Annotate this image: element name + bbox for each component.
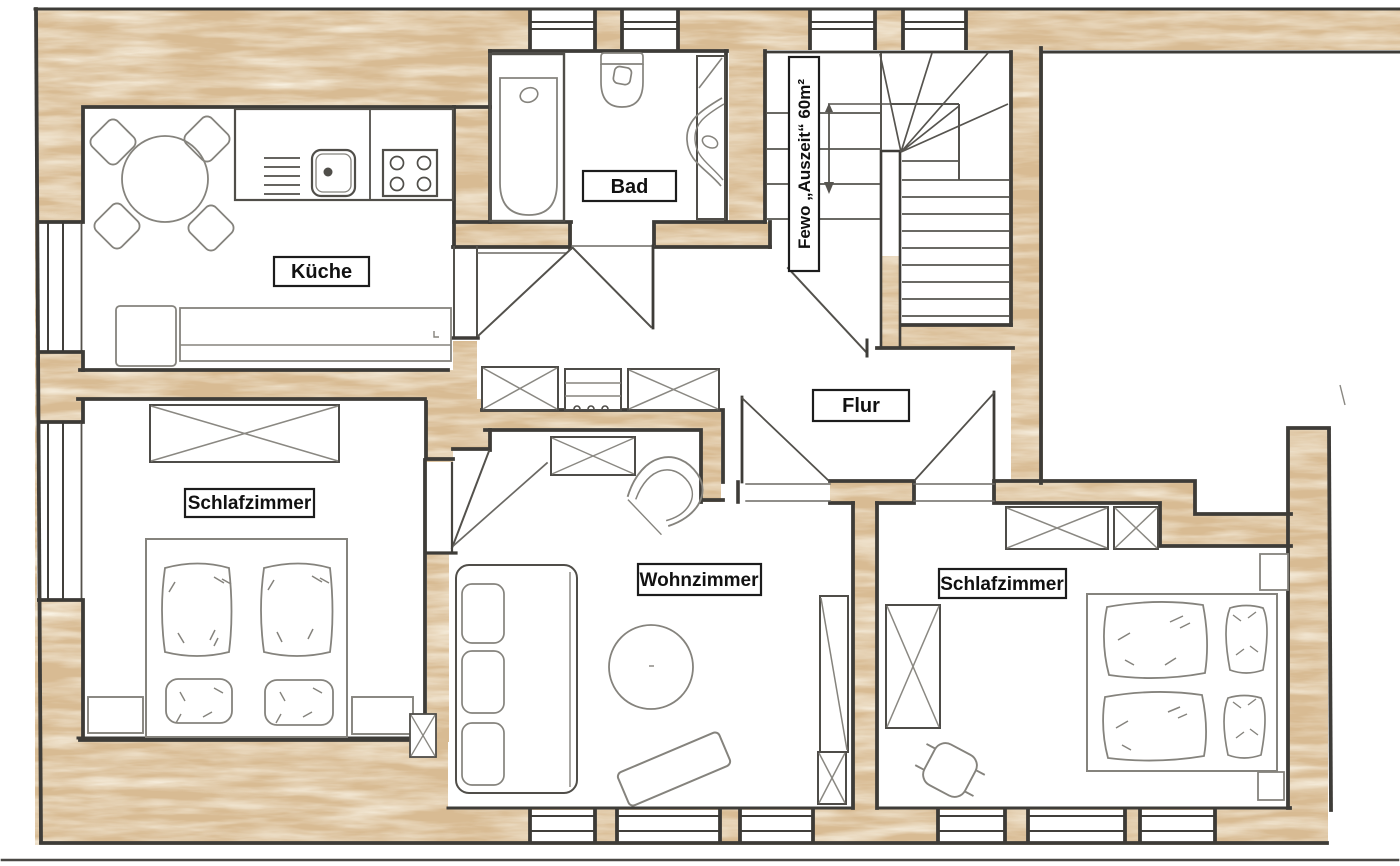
svg-text:Schlafzimmer: Schlafzimmer: [188, 493, 312, 514]
svg-text:Bad: Bad: [611, 176, 649, 198]
svg-text:Fewo „Auszeit“ 60m²: Fewo „Auszeit“ 60m²: [795, 79, 814, 249]
svg-text:Küche: Küche: [291, 261, 352, 283]
svg-text:Schlafzimmer: Schlafzimmer: [940, 574, 1064, 595]
svg-text:Flur: Flur: [842, 395, 880, 417]
svg-text:Wohnzimmer: Wohnzimmer: [640, 570, 760, 591]
